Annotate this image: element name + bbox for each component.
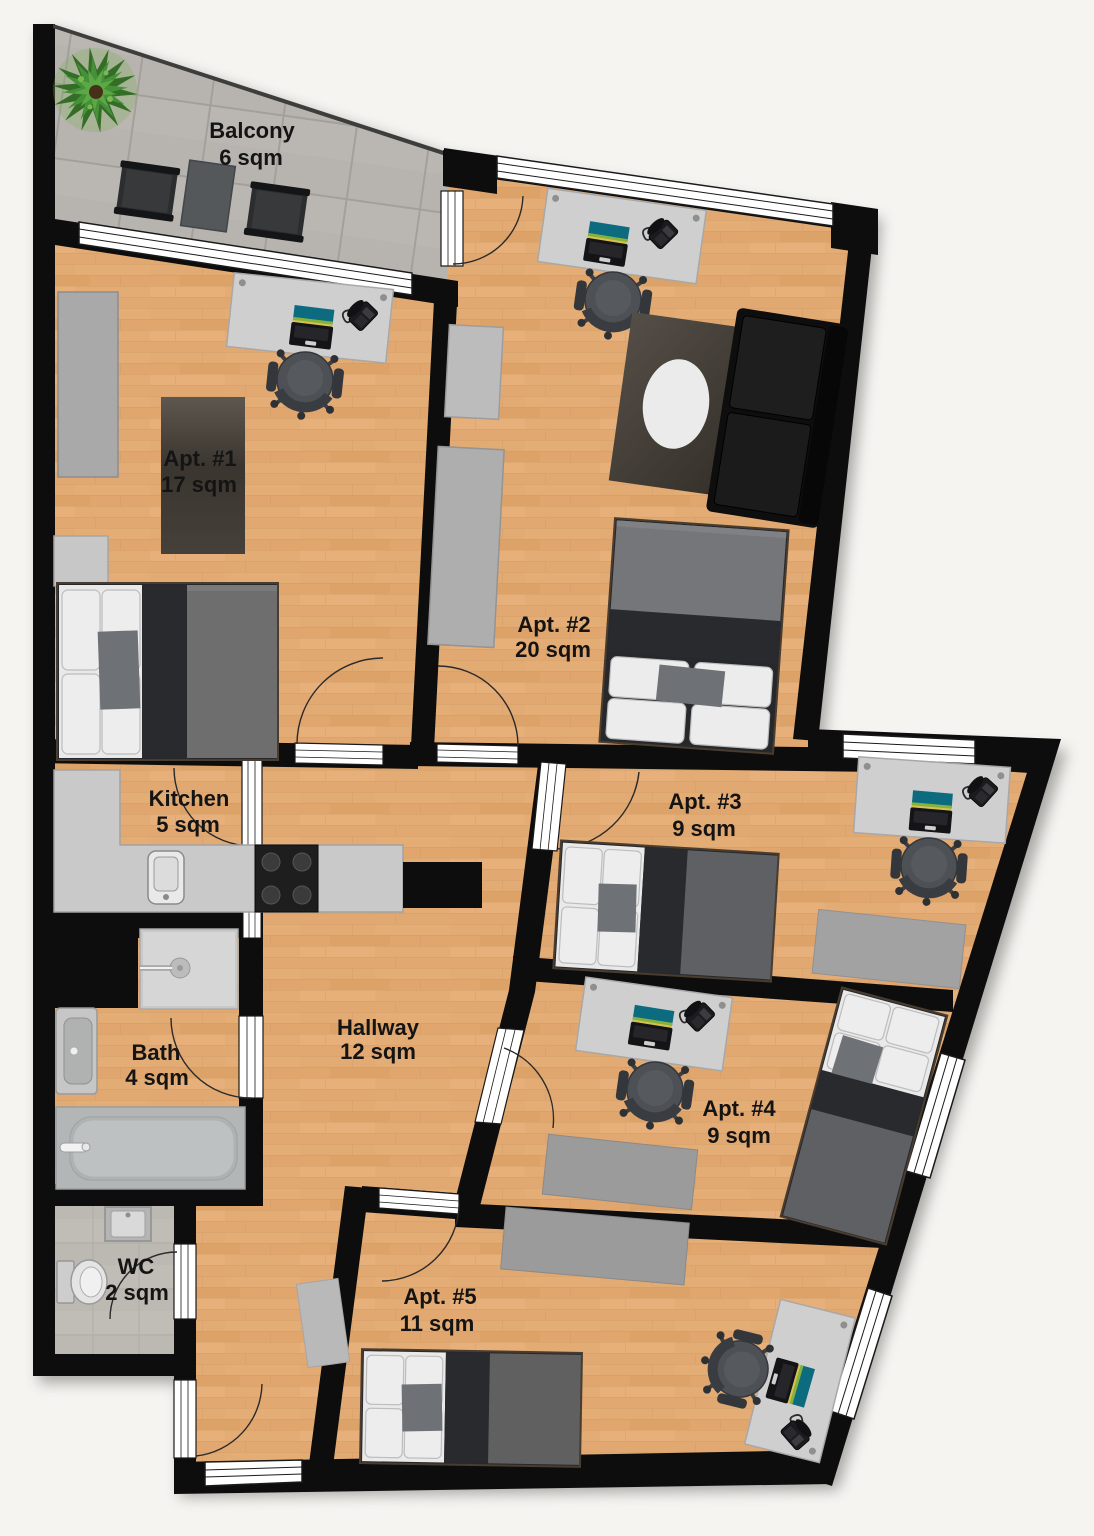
svg-text:WC: WC <box>118 1254 155 1279</box>
svg-text:Apt. #4: Apt. #4 <box>702 1096 776 1121</box>
svg-text:9 sqm: 9 sqm <box>707 1123 771 1148</box>
svg-text:11 sqm: 11 sqm <box>400 1311 475 1336</box>
svg-text:2 sqm: 2 sqm <box>105 1280 169 1305</box>
svg-text:Apt. #2: Apt. #2 <box>517 612 590 637</box>
svg-text:17 sqm: 17 sqm <box>161 472 237 497</box>
svg-text:Hallway: Hallway <box>337 1015 420 1040</box>
svg-text:9 sqm: 9 sqm <box>672 816 736 841</box>
svg-text:6 sqm: 6 sqm <box>219 145 283 170</box>
svg-text:Apt. #5: Apt. #5 <box>403 1284 476 1309</box>
svg-text:Balcony: Balcony <box>209 118 295 143</box>
svg-text:20 sqm: 20 sqm <box>515 637 591 662</box>
svg-text:Apt. #3: Apt. #3 <box>668 789 741 814</box>
svg-text:Apt. #1: Apt. #1 <box>163 446 236 471</box>
svg-text:Kitchen: Kitchen <box>149 786 230 811</box>
svg-text:Bath: Bath <box>132 1040 181 1065</box>
svg-text:12 sqm: 12 sqm <box>340 1039 416 1064</box>
svg-text:4 sqm: 4 sqm <box>125 1065 189 1090</box>
svg-text:5 sqm: 5 sqm <box>156 812 220 837</box>
